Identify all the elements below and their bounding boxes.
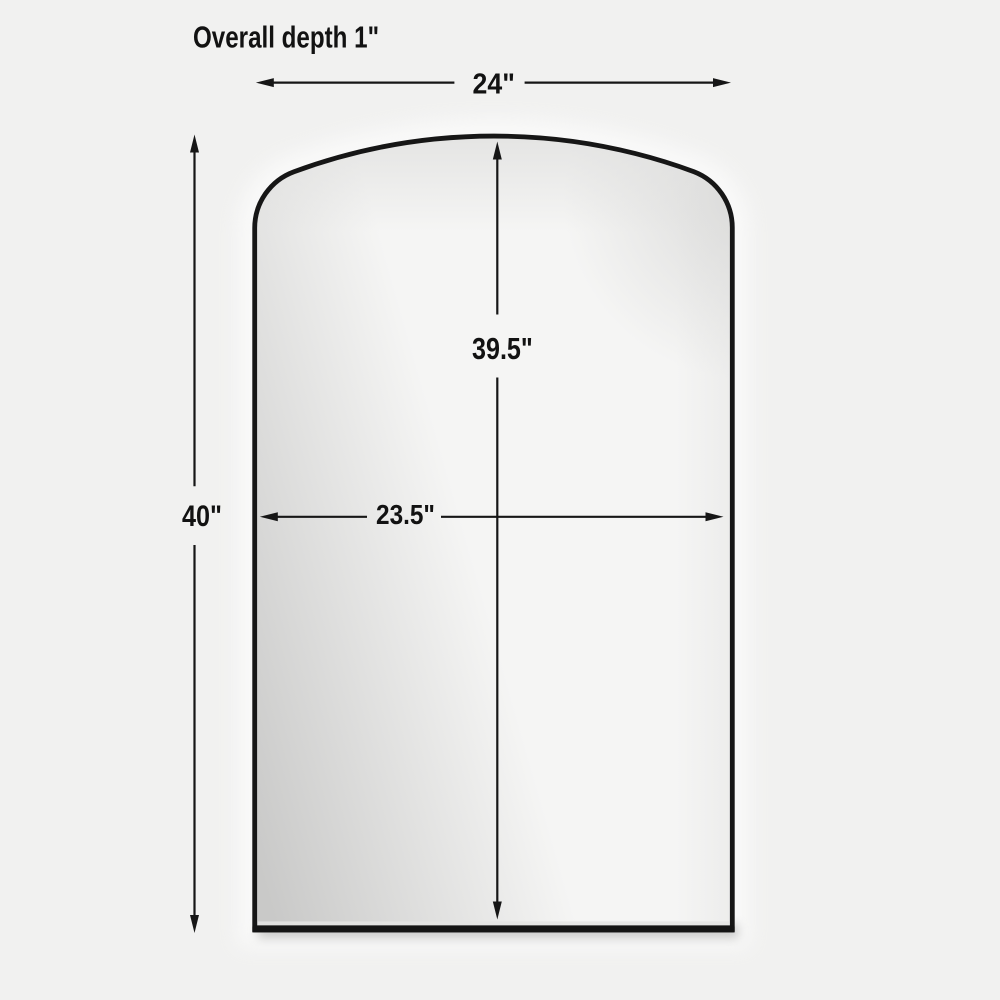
- svg-text:23.5": 23.5": [376, 499, 435, 531]
- svg-text:39.5": 39.5": [472, 331, 533, 366]
- svg-text:24": 24": [473, 67, 515, 99]
- svg-text:Overall depth 1": Overall depth 1": [193, 19, 379, 54]
- svg-text:40": 40": [182, 499, 222, 533]
